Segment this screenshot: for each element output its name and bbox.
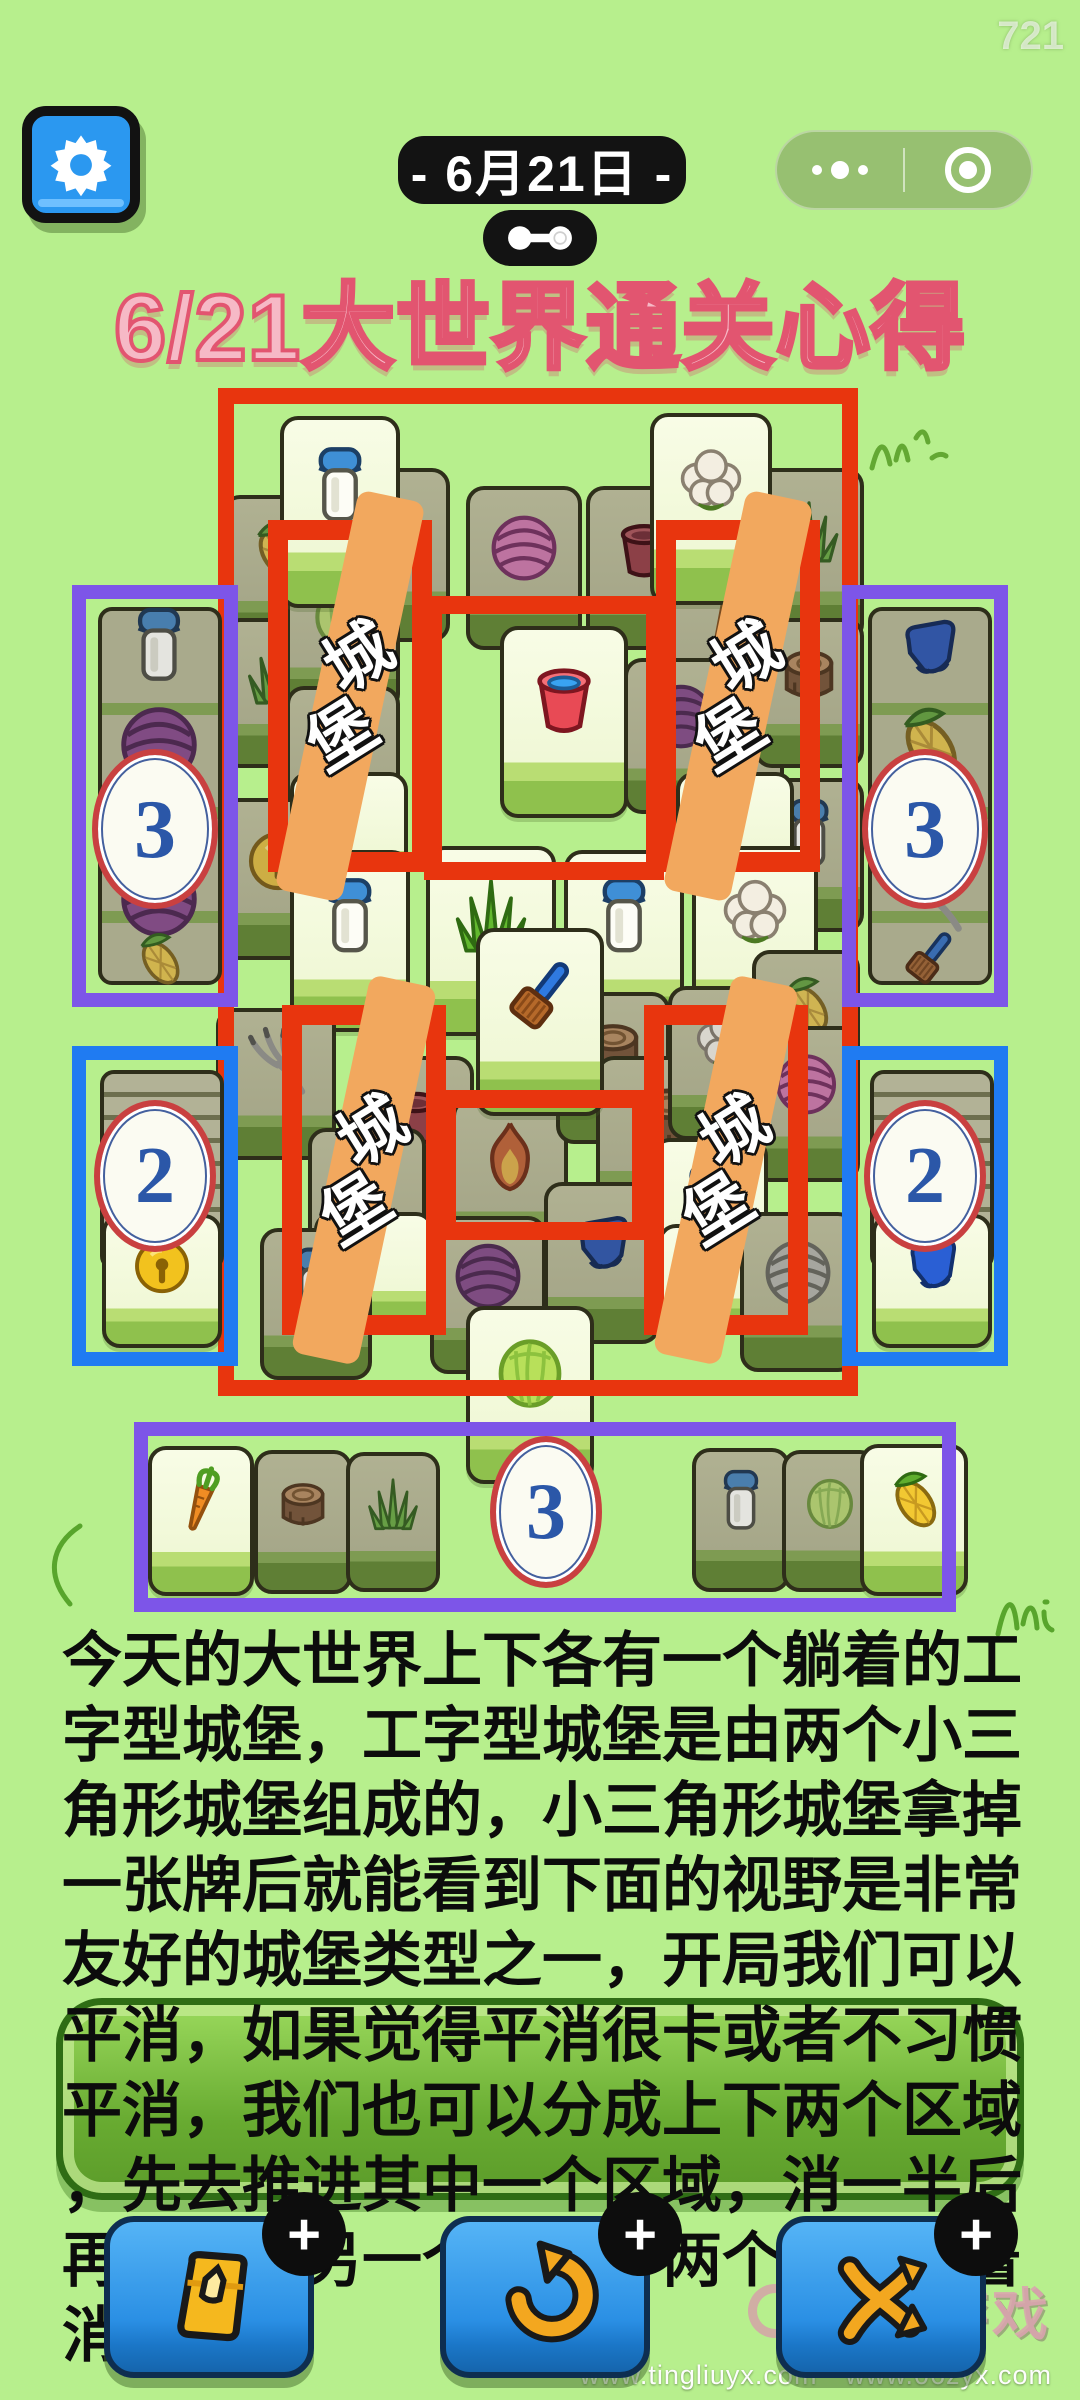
count-badge: 2 [94, 1100, 216, 1252]
count-badge: 3 [862, 749, 988, 909]
count-badge: 3 [92, 749, 218, 909]
castle-label: 城 [701, 611, 792, 702]
castle-annotation: 城堡 [644, 1005, 808, 1335]
castle-annotation: 城堡 [268, 520, 432, 872]
bag-icon [149, 2237, 269, 2357]
settings-button[interactable] [22, 106, 140, 223]
castle-connector [424, 596, 664, 880]
castle-annotation: 城堡 [282, 1005, 446, 1335]
castle-ribbon: 城堡 [274, 489, 425, 902]
castle-label: 城 [313, 611, 404, 702]
brush-icon [880, 923, 978, 995]
page-title: 6/21大世界通关心得 [0, 252, 1080, 388]
date-pill[interactable]: - 6月21日 - [398, 136, 686, 204]
milk-icon [110, 603, 208, 689]
stack-count-box-2: 2 [72, 1046, 238, 1366]
guide-text-line: 今天的大世界上下各有一个躺着的工 [62, 1628, 1042, 1694]
count-badge: 3 [490, 1436, 602, 1588]
shuffle-icon [821, 2237, 941, 2357]
more-dots-icon [812, 161, 868, 179]
castle-label: 城 [689, 1085, 780, 1176]
castle-label: 堡 [684, 690, 775, 781]
castle-label: 堡 [296, 690, 387, 781]
status-time: 721 [997, 14, 1064, 59]
castle-connector [438, 1090, 650, 1240]
undo-icon [485, 2237, 605, 2357]
target-icon [945, 147, 991, 193]
guide-text-line: 平消，如果觉得平消很卡或者不习惯 [62, 2003, 1042, 2069]
guide-text-line: ，先去推进其中一个区域，消一半后 [62, 2153, 1042, 2219]
guide-text-line: 平消，我们也可以分成上下两个区域 [62, 2078, 1042, 2144]
castle-ribbon: 城堡 [291, 974, 438, 1366]
castle-label: 城 [327, 1085, 418, 1176]
castle-annotation: 城堡 [656, 520, 820, 872]
mini-program-screen: 721 - 6月21日 - 6/21大世界通关心得 3322城堡城堡城堡城堡 3… [0, 0, 1080, 2400]
glove-icon [880, 603, 978, 689]
grass-sketch-icon [862, 398, 952, 488]
close-home-button[interactable] [905, 132, 1031, 208]
stack-count-box-3: 3 [72, 585, 238, 1007]
castle-ribbon: 城堡 [662, 489, 813, 902]
ad-plus-badge[interactable]: + [934, 2192, 1018, 2276]
guide-text-line: 字型城堡，工字型城堡是由两个小三 [62, 1703, 1042, 1769]
castle-label: 堡 [672, 1164, 763, 1255]
more-options-button[interactable] [777, 132, 903, 208]
castle-ribbon: 城堡 [653, 974, 800, 1366]
castle-label: 堡 [310, 1164, 401, 1255]
stack-count-box-2: 2 [842, 1046, 1008, 1366]
guide-text-line: 角形城堡组成的，小三角形城堡拿掉 [62, 1778, 1042, 1844]
guide-text-line: 友好的城堡类型之一，开局我们可以 [62, 1928, 1042, 1994]
stack-count-box-3: 3 [842, 585, 1008, 1007]
miniprogram-capsule [775, 130, 1033, 210]
curve-sketch-icon [30, 1520, 100, 1610]
ad-plus-badge[interactable]: + [598, 2192, 682, 2276]
ad-plus-badge[interactable]: + [262, 2192, 346, 2276]
guide-text-line: 一张牌后就能看到下面的视野是非常 [62, 1853, 1042, 1919]
count-badge: 2 [864, 1100, 986, 1252]
gear-icon [42, 126, 120, 204]
corn-icon [110, 923, 208, 995]
